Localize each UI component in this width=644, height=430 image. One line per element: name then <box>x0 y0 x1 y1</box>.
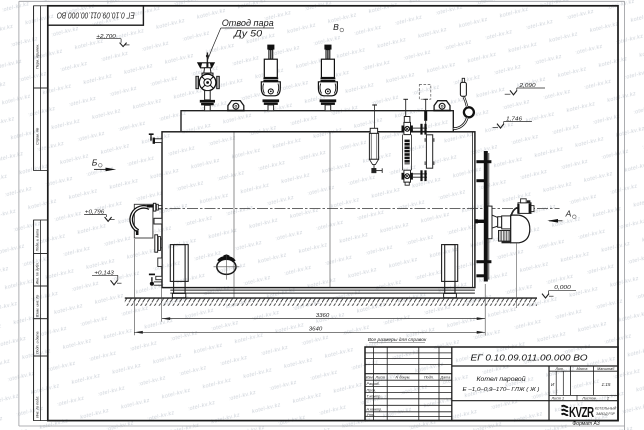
svg-text:Лист: Лист <box>375 376 386 380</box>
svg-text:2: 2 <box>606 397 609 401</box>
svg-text:Разраб.: Разраб. <box>367 382 380 386</box>
svg-text:KVZR: KVZR <box>569 405 594 421</box>
svg-text:ЕГ 0.10.09.011.00.000 ВО: ЕГ 0.10.09.011.00.000 ВО <box>471 353 589 363</box>
svg-text:Пров.: Пров. <box>367 388 377 392</box>
svg-text:Котел паровой: Котел паровой <box>477 376 527 383</box>
svg-text:А: А <box>565 209 572 219</box>
svg-text:Перв. примен.: Перв. примен. <box>36 44 40 69</box>
svg-text:Листов: Листов <box>581 397 596 401</box>
svg-text:Взам. инв. №: Взам. инв. № <box>36 295 40 317</box>
svg-text:Изм: Изм <box>366 376 373 380</box>
svg-text:В: В <box>333 22 339 32</box>
svg-text:Масштаб: Масштаб <box>597 367 615 371</box>
svg-text:Инв. № дубл.: Инв. № дубл. <box>36 262 40 284</box>
svg-text:КОТЕЛЬНЫЙ: КОТЕЛЬНЫЙ <box>595 407 617 411</box>
svg-text:Лист 1: Лист 1 <box>551 397 565 401</box>
svg-text:1:15: 1:15 <box>602 382 611 387</box>
svg-text:Справ. №: Справ. № <box>36 128 40 145</box>
svg-text:Формат А3: Формат А3 <box>572 421 600 427</box>
svg-text:N докум.: N докум. <box>396 376 411 380</box>
svg-text:Подп. и дата: Подп. и дата <box>36 229 40 252</box>
svg-text:Масса: Масса <box>577 367 588 371</box>
svg-text:Б: Б <box>92 158 98 168</box>
svg-text:ЗАВОД РЗР: ЗАВОД РЗР <box>596 412 616 416</box>
svg-text:Подп. и дата: Подп. и дата <box>36 332 40 355</box>
svg-text:Инв. № подл.: Инв. № подл. <box>36 396 40 418</box>
svg-text:ЕГ 0.10.09.011.00.000 ВО: ЕГ 0.10.09.011.00.000 ВО <box>57 11 135 21</box>
svg-text:Лит.: Лит. <box>554 367 564 371</box>
svg-text:3360: 3360 <box>316 313 330 319</box>
svg-text:Утв.: Утв. <box>367 413 375 417</box>
svg-text:Т.контр.: Т.контр. <box>367 395 382 399</box>
svg-text:Н.контр.: Н.контр. <box>367 408 383 412</box>
svg-text:Е –1,0–0,9–170– ГЛЖ ( Ж ): Е –1,0–0,9–170– ГЛЖ ( Ж ) <box>463 387 540 393</box>
svg-text:Все размеры для справок: Все размеры для справок <box>368 337 427 343</box>
svg-text:Подп.: Подп. <box>424 376 434 380</box>
svg-text:Дата: Дата <box>440 376 451 380</box>
svg-text:0,000: 0,000 <box>554 285 571 291</box>
svg-text:Ду 50: Ду 50 <box>233 28 263 39</box>
svg-text:3640: 3640 <box>309 327 323 333</box>
